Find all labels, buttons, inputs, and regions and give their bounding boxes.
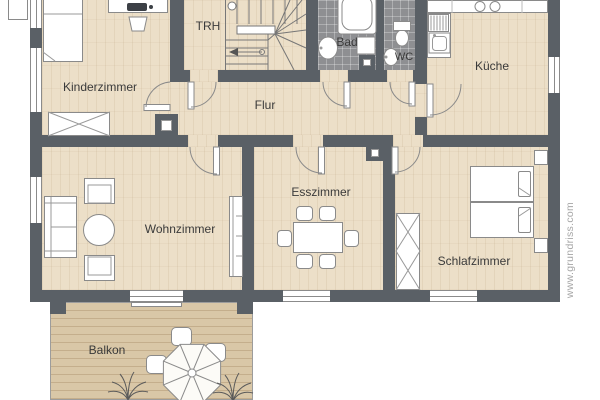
kinderzimmer-furniture-lines <box>43 5 153 136</box>
floorplan: Kinderzimmer TRH Bad WC Küche Flur Wohnz… <box>0 0 600 400</box>
bathtub <box>338 0 376 34</box>
parasol-table <box>163 344 220 400</box>
staircase <box>225 0 306 70</box>
watermark: www.grundriss.com <box>564 202 576 298</box>
room-label-kinderzimmer: Kinderzimmer <box>63 80 137 94</box>
room-label-kueche: Küche <box>475 59 509 73</box>
toilet <box>394 22 411 47</box>
room-label-bad: Bad <box>336 35 357 49</box>
room-label-trh: TRH <box>196 19 221 33</box>
washing-machine <box>357 37 375 54</box>
kitchen-fixtures <box>429 0 523 53</box>
room-label-wohnzimmer: Wohnzimmer <box>145 222 215 236</box>
door-leaves <box>144 82 433 175</box>
room-label-balkon: Balkon <box>89 343 126 357</box>
lineart-overlay <box>0 0 600 400</box>
bad-sink <box>319 37 338 59</box>
room-label-wc: WC <box>395 51 413 63</box>
room-label-schlafzimmer: Schlafzimmer <box>438 254 511 268</box>
room-label-flur: Flur <box>255 98 276 112</box>
room-label-esszimmer: Esszimmer <box>291 185 350 199</box>
schlafzimmer-furniture-lines <box>396 188 531 290</box>
plant-left <box>108 372 148 400</box>
